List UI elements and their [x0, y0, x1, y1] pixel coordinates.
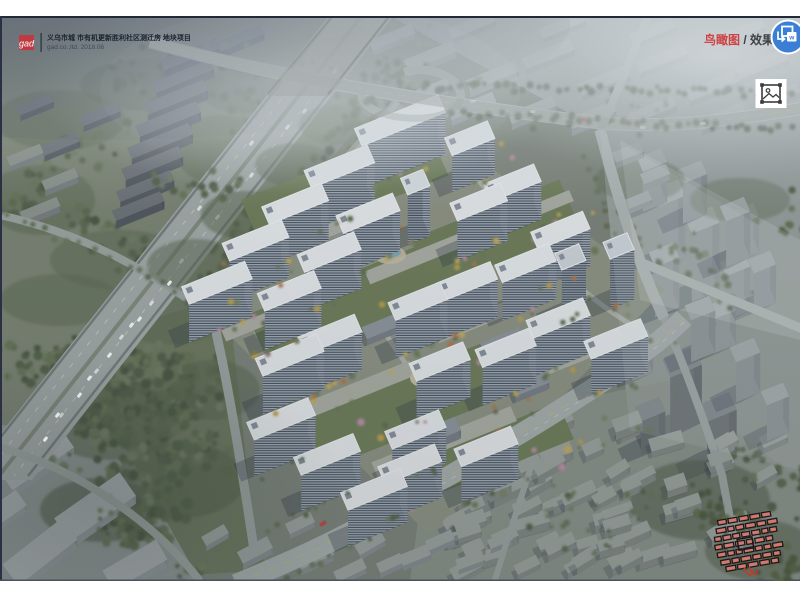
svg-text:义乌市城 市有机更新胜利社区测迁房 地块项目: 义乌市城 市有机更新胜利社区测迁房 地块项目 — [46, 33, 191, 42]
svg-text:w: w — [788, 35, 795, 42]
svg-text:gad: gad — [19, 39, 35, 49]
svg-text:gad.co.,ltd. 2018.06: gad.co.,ltd. 2018.06 — [47, 44, 104, 51]
